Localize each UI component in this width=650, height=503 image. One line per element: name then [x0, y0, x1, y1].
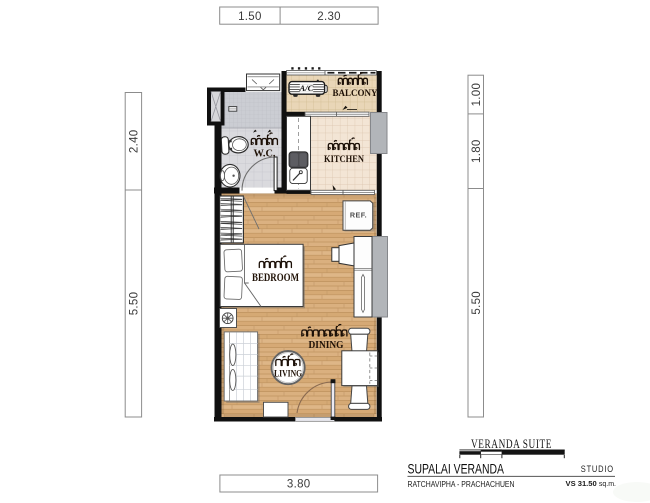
svg-text:3.80: 3.80 [287, 479, 311, 491]
svg-text:KITCHEN: KITCHEN [324, 154, 364, 165]
svg-text:1.00: 1.00 [471, 83, 483, 107]
svg-text:LIVING: LIVING [274, 369, 302, 379]
svg-text:2.30: 2.30 [317, 11, 341, 23]
svg-text:A/C: A/C [298, 83, 313, 93]
svg-text:VS 31.50 sq.m.: VS 31.50 sq.m. [566, 479, 617, 488]
svg-text:STUDIO: STUDIO [581, 464, 614, 475]
svg-text:5.50: 5.50 [128, 292, 140, 316]
svg-text:BEDROOM: BEDROOM [252, 272, 299, 284]
svg-text:REF.: REF. [350, 210, 367, 219]
svg-text:VERANDA SUITE: VERANDA SUITE [471, 436, 552, 451]
svg-text:W.C.: W.C. [254, 148, 276, 159]
svg-text:SUPALAI VERANDA: SUPALAI VERANDA [408, 460, 505, 476]
svg-text:2.40: 2.40 [128, 130, 140, 154]
svg-text:RATCHAVIPHA - PRACHACHUEN: RATCHAVIPHA - PRACHACHUEN [408, 480, 515, 489]
svg-text:5.50: 5.50 [471, 291, 483, 315]
svg-text:BALCONY: BALCONY [333, 88, 378, 99]
svg-text:DINING: DINING [309, 340, 344, 351]
svg-text:1.80: 1.80 [471, 139, 483, 163]
svg-text:1.50: 1.50 [238, 11, 262, 23]
